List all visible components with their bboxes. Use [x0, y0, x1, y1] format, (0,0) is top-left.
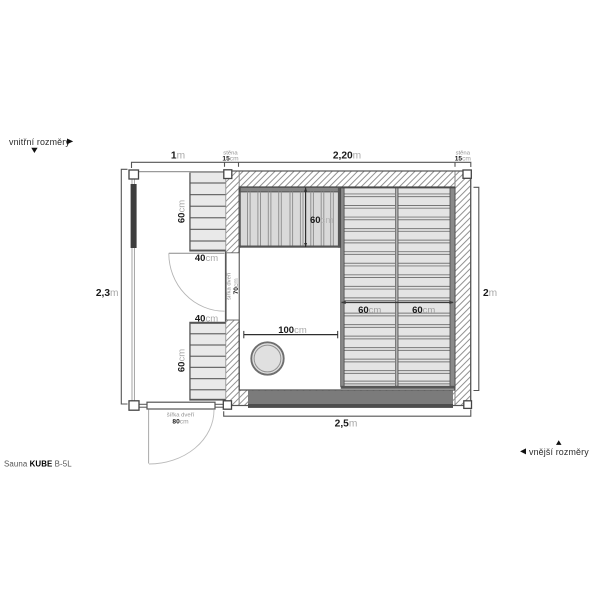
svg-text:vnější rozměry: vnější rozměry	[529, 447, 589, 457]
svg-text:60cm: 60cm	[310, 215, 333, 226]
svg-text:1m: 1m	[171, 151, 185, 162]
svg-text:60cm: 60cm	[358, 305, 381, 316]
svg-text:40cm: 40cm	[195, 253, 218, 264]
svg-text:2,3m: 2,3m	[96, 288, 119, 299]
svg-text:60cm: 60cm	[412, 305, 435, 316]
svg-text:80cm: 80cm	[172, 419, 189, 426]
svg-text:60cm: 60cm	[177, 349, 188, 372]
svg-text:2m: 2m	[483, 288, 497, 299]
svg-text:2,5m: 2,5m	[335, 418, 358, 429]
svg-text:2,20m: 2,20m	[333, 151, 361, 162]
svg-text:vnitřní rozměry: vnitřní rozměry	[9, 137, 70, 147]
svg-text:60cm: 60cm	[177, 200, 188, 223]
svg-text:šířka dveří: šířka dveří	[227, 272, 233, 300]
svg-text:šířka dveří: šířka dveří	[167, 412, 195, 418]
svg-text:40cm: 40cm	[195, 313, 218, 324]
svg-text:15cm: 15cm	[455, 155, 472, 162]
svg-text:15cm: 15cm	[222, 155, 239, 162]
svg-text:100cm: 100cm	[278, 325, 307, 336]
svg-text:70cm: 70cm	[233, 278, 240, 295]
svg-text:Sauna KUBE B-5L: Sauna KUBE B-5L	[4, 459, 72, 468]
